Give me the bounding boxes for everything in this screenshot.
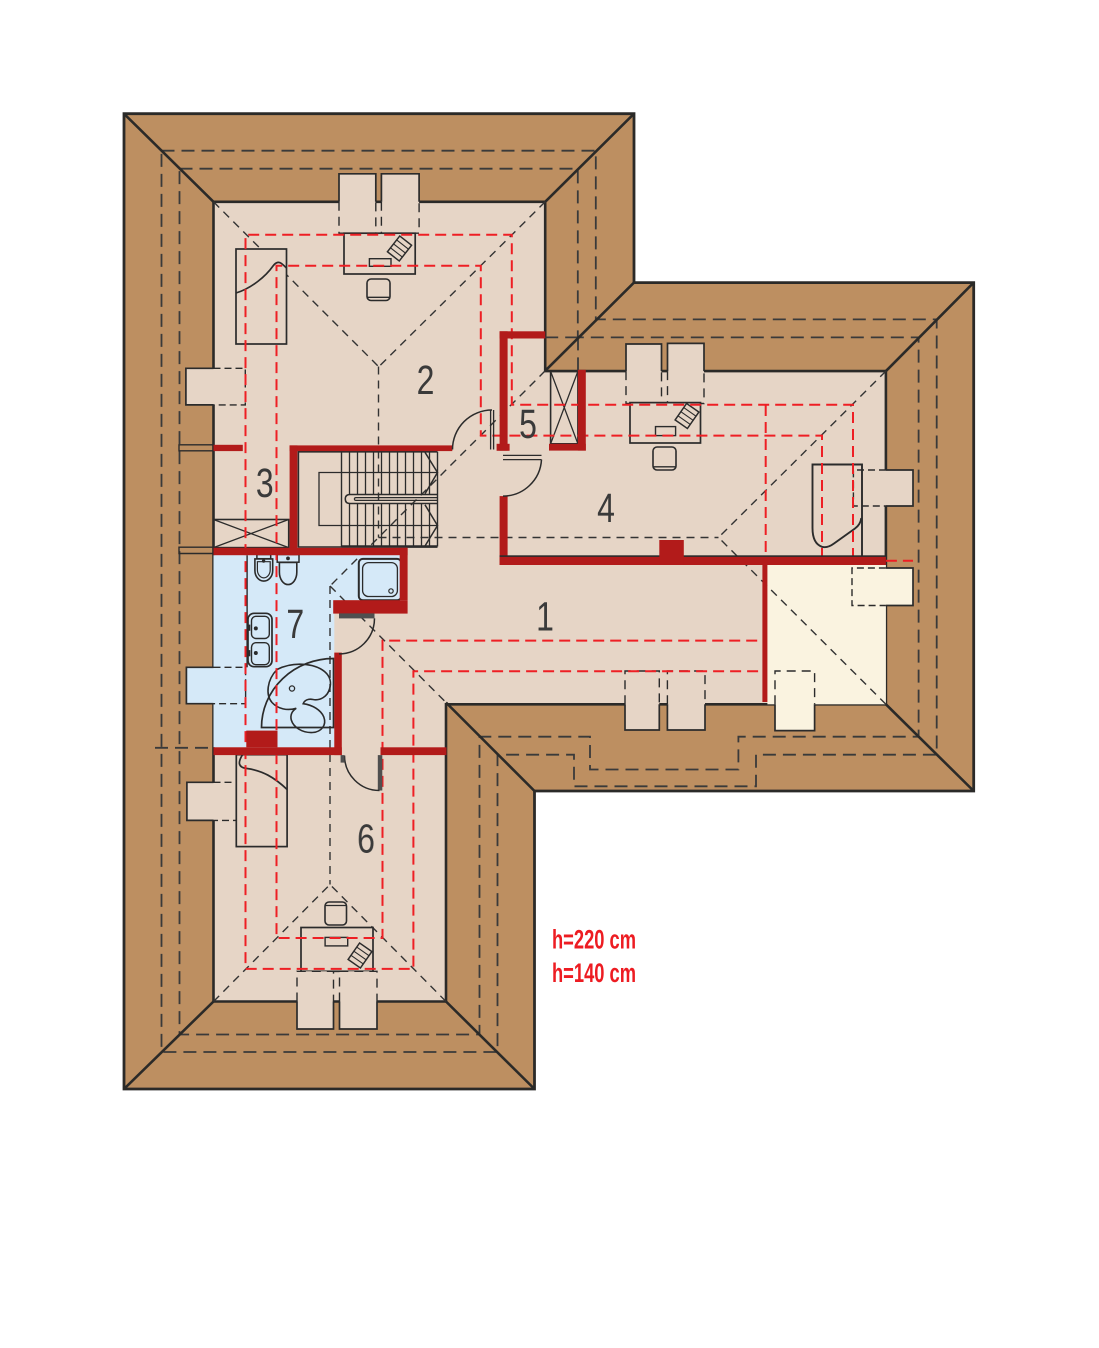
svg-text:7: 7	[286, 601, 304, 647]
svg-text:h=140 cm: h=140 cm	[552, 958, 636, 988]
svg-text:3: 3	[256, 460, 274, 506]
svg-text:2: 2	[417, 357, 435, 403]
svg-text:5: 5	[519, 401, 537, 447]
svg-text:h=220 cm: h=220 cm	[552, 924, 636, 954]
svg-text:4: 4	[597, 485, 615, 531]
svg-text:1: 1	[536, 594, 554, 640]
svg-text:6: 6	[357, 816, 375, 862]
